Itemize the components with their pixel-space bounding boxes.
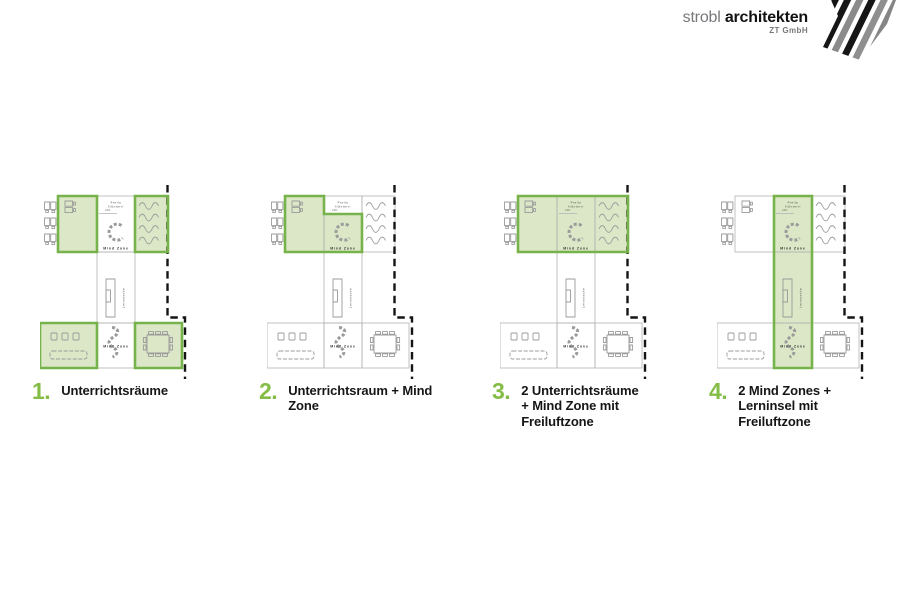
furniture-conference-table-bottom-right <box>603 332 632 357</box>
logo: strobl architekten ZT GmbH <box>683 9 808 36</box>
mind-zone-bottom-label: Mind Zone <box>563 345 589 349</box>
furniture-tables-bottom-left <box>727 333 764 359</box>
caption-line: 2 Unterrichtsräume <box>521 383 638 399</box>
room-classroom-bottom-left <box>717 323 774 368</box>
freiluft-label: cht <box>565 208 571 212</box>
diagram-caption-1: 1.Unterrichtsräume <box>32 380 222 403</box>
furniture-lernnische-table <box>566 279 575 317</box>
furniture-conference-table-bottom-right <box>370 332 399 357</box>
room-classroom-bottom-left <box>267 323 324 368</box>
diagram-caption-3: 3.2 Unterrichtsräume+ Mind Zone mitFreil… <box>492 380 682 429</box>
diagram-number-3: 3. <box>492 380 510 403</box>
caption-line: Lerninsel mit <box>738 398 831 414</box>
mind-zone-bottom-label: Mind Zone <box>103 345 129 349</box>
slide-page: strobl architekten ZT GmbH <box>0 0 900 600</box>
furniture-mindzone-curve-bottom <box>569 328 578 358</box>
diagram-caption-4: 4.2 Mind Zones +Lerninsel mitFreiluftzon… <box>709 380 899 429</box>
room-classroom-bottom-right <box>812 323 859 368</box>
furniture-mindzone-curve-bottom <box>109 328 118 358</box>
furniture-tables-bottom-left <box>510 333 547 359</box>
floorplan-diagram-3: FreiluftUnterrichtMind ZoneMind ZoneLern… <box>500 183 660 388</box>
furniture-tables-bottom-left <box>277 333 314 359</box>
room-classroom-bottom-left <box>500 323 557 368</box>
diagram-caption-2: 2.Unterrichtsraum + MindZone <box>259 380 449 414</box>
mind-zone-bottom-label: Mind Zone <box>330 345 356 349</box>
furniture-mindzone-arc-top <box>109 224 122 240</box>
caption-line: Zone <box>288 398 432 414</box>
diagram-caption-text-1: Unterrichtsräume <box>61 383 168 399</box>
floorplan-diagram-1: FreiluftUnterrichtMind ZoneMind ZoneLern… <box>40 183 200 388</box>
freiluft-label: cht <box>782 208 788 212</box>
room-lernnische-corridor <box>97 252 135 323</box>
lernnische-label: Lernnische <box>122 288 126 308</box>
caption-line: Freiluftzone <box>738 414 831 430</box>
mind-zone-top-label: Mind Zone <box>780 247 806 251</box>
diagram-caption-text-3: 2 Unterrichtsräume+ Mind Zone mitFreiluf… <box>521 383 638 430</box>
caption-line: + Mind Zone mit <box>521 398 638 414</box>
diagram-caption-text-2: Unterrichtsraum + MindZone <box>288 383 432 414</box>
furniture-lernnische-table <box>333 279 342 317</box>
caption-line: Unterrichtsräume <box>61 383 168 399</box>
room-classroom-bottom-right <box>595 323 642 368</box>
furniture-wave-desks-top-right <box>816 203 836 244</box>
logo-wordmark: strobl architekten <box>683 9 808 27</box>
caption-line: Freiluftzone <box>521 414 638 430</box>
logo-name-bold: architekten <box>725 9 808 26</box>
freiluft-label: cht <box>332 208 338 212</box>
caption-line: Unterrichtsraum + Mind <box>288 383 432 399</box>
mind-zone-top-label: Mind Zone <box>103 247 129 251</box>
mind-zone-top-label: Mind Zone <box>563 247 589 251</box>
furniture-wave-desks-top-right <box>366 203 386 244</box>
logo-subtitle: ZT GmbH <box>683 26 808 35</box>
highlight-zone-fill <box>40 196 182 368</box>
logo-name-light: strobl <box>683 9 721 26</box>
lernnische-label: Lernnische <box>349 288 353 308</box>
furniture-desks-top-left <box>722 201 753 244</box>
diagonal-stripes-icon <box>818 0 896 60</box>
lernnische-label: Lernnische <box>799 288 803 308</box>
mind-zone-top-label: Mind Zone <box>330 247 356 251</box>
room-classroom-top-left <box>735 196 774 252</box>
room-lernnische-corridor <box>557 252 595 323</box>
lernnische-label: Lernnische <box>582 288 586 308</box>
diagram-number-1: 1. <box>32 380 50 403</box>
caption-line: 2 Mind Zones + <box>738 383 831 399</box>
furniture-mindzone-curve-bottom <box>336 328 345 358</box>
highlight-zone-fill <box>774 196 812 368</box>
room-lernnische-corridor <box>324 252 362 323</box>
diagram-number-2: 2. <box>259 380 277 403</box>
room-classroom-bottom-right <box>362 323 409 368</box>
furniture-conference-table-bottom-right <box>820 332 849 357</box>
freiluft-label: cht <box>105 208 111 212</box>
diagram-number-4: 4. <box>709 380 727 403</box>
mind-zone-bottom-label: Mind Zone <box>780 345 806 349</box>
furniture-lernnische-table <box>106 279 115 317</box>
floorplan-diagram-2: FreiluftUnterrichtMind ZoneMind ZoneLern… <box>267 183 427 388</box>
diagram-caption-text-4: 2 Mind Zones +Lerninsel mitFreiluftzone <box>738 383 831 430</box>
floorplan-diagram-4: FreiluftUnterrichtMind ZoneMind ZoneLern… <box>717 183 877 388</box>
